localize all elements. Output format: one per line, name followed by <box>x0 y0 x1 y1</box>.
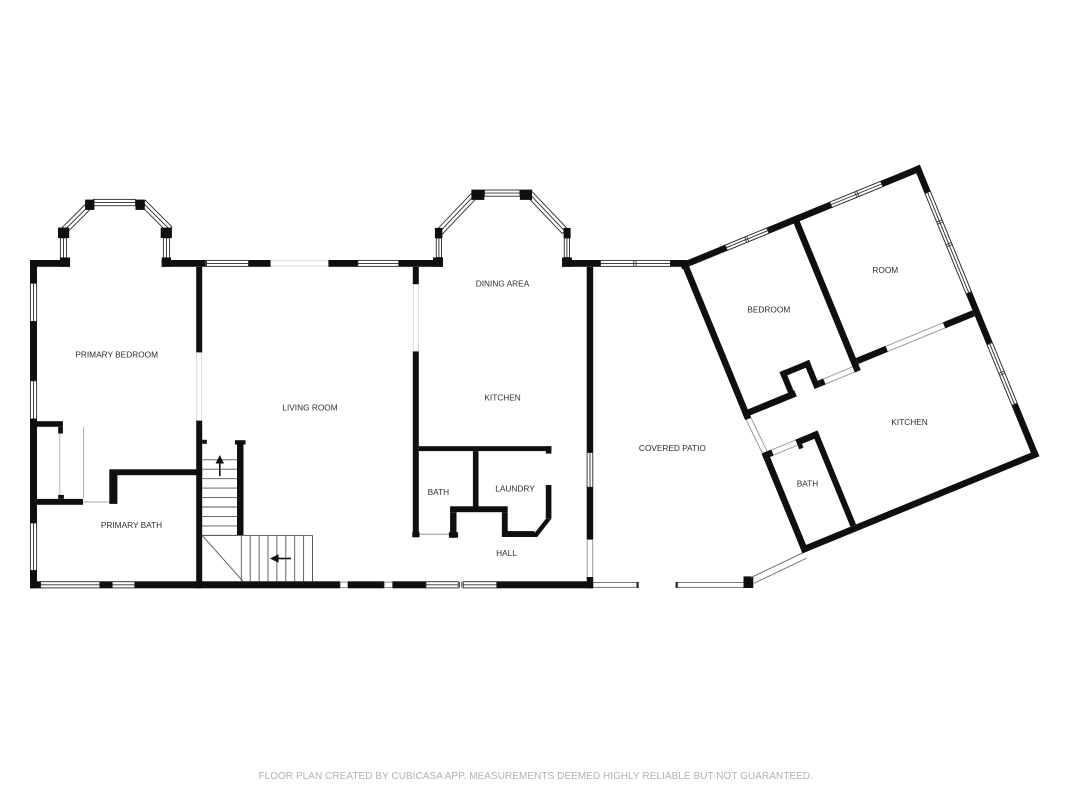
svg-text:BATH: BATH <box>428 487 450 497</box>
svg-text:LIVING ROOM: LIVING ROOM <box>282 402 337 412</box>
svg-text:BATH: BATH <box>797 479 819 489</box>
svg-text:HALL: HALL <box>496 548 517 558</box>
svg-text:ROOM: ROOM <box>872 265 898 275</box>
svg-text:COVERED PATIO: COVERED PATIO <box>639 443 707 453</box>
svg-text:BEDROOM: BEDROOM <box>747 305 790 315</box>
svg-text:FLOOR PLAN CREATED BY CUBICASA: FLOOR PLAN CREATED BY CUBICASA APP. MEAS… <box>258 771 813 782</box>
svg-text:LAUNDRY: LAUNDRY <box>495 483 535 493</box>
svg-text:KITCHEN: KITCHEN <box>891 417 927 427</box>
svg-text:KITCHEN: KITCHEN <box>484 392 520 402</box>
svg-text:PRIMARY BATH: PRIMARY BATH <box>101 520 162 530</box>
svg-text:PRIMARY BEDROOM: PRIMARY BEDROOM <box>75 350 158 360</box>
svg-text:DINING AREA: DINING AREA <box>476 278 530 288</box>
